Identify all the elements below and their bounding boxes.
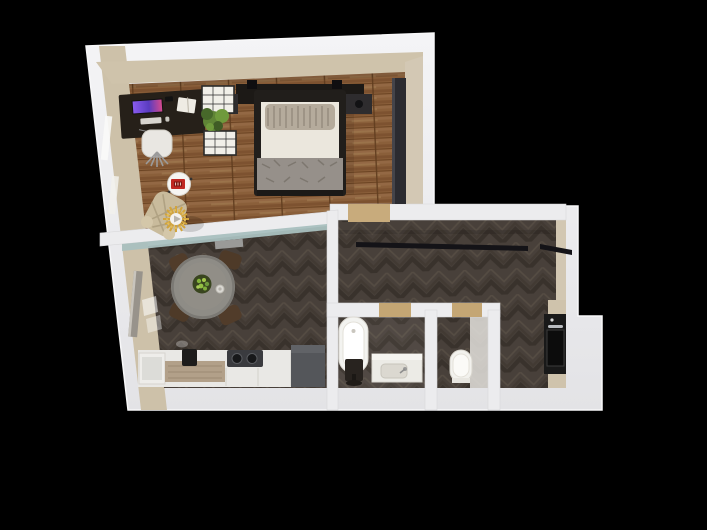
floorplan-svg [0, 0, 707, 530]
wc-fixtures [450, 350, 472, 383]
stool-base [346, 380, 362, 386]
bed-foot-rail [257, 190, 343, 196]
bathroom-door-threshold[interactable] [379, 303, 411, 317]
oven-handle [548, 325, 563, 328]
oven-column[interactable] [544, 314, 566, 374]
burner-1 [232, 354, 242, 364]
toilet-tank [452, 378, 470, 383]
coffee-machine[interactable] [182, 349, 197, 366]
floorplan-render-canvas [0, 0, 707, 530]
dark-cabinet-top-shade [291, 345, 325, 353]
burner-2 [247, 354, 257, 364]
bed-post-right [332, 80, 342, 89]
bedroom-right-wall-face [405, 56, 423, 212]
lamp-right [355, 100, 363, 108]
bathtub-drain [352, 329, 356, 333]
mouse [165, 117, 169, 122]
blanket [257, 158, 343, 190]
bathroom-stool[interactable] [345, 359, 363, 386]
dining-set[interactable] [167, 249, 243, 327]
wardrobe-highlight [392, 78, 395, 204]
toilet[interactable] [450, 350, 472, 383]
open-book [177, 97, 197, 113]
wc-right-wall-face [470, 316, 488, 388]
counter-left-glass [142, 357, 162, 380]
shelf-lower [204, 131, 236, 155]
monitor-screen [132, 99, 163, 114]
oven-door [547, 330, 564, 366]
toilet-seat [453, 354, 469, 377]
wall-wc-nook-divider [488, 310, 500, 410]
bed-post-left [247, 80, 257, 89]
bedroom-hall-door-threshold[interactable] [348, 204, 390, 222]
wall-bathroom-wc-divider [425, 310, 437, 410]
cup-inner [218, 287, 221, 290]
oven-indicator [550, 318, 553, 321]
phone [165, 96, 173, 102]
vanity-backsplash [372, 354, 422, 360]
side-table-leg [190, 178, 193, 181]
wc-door-threshold[interactable] [452, 303, 482, 317]
vanity-sink[interactable] [372, 354, 422, 382]
hallway-floor-shadow-top [337, 230, 556, 234]
pillow [265, 104, 335, 130]
coffee-steam [176, 341, 188, 348]
